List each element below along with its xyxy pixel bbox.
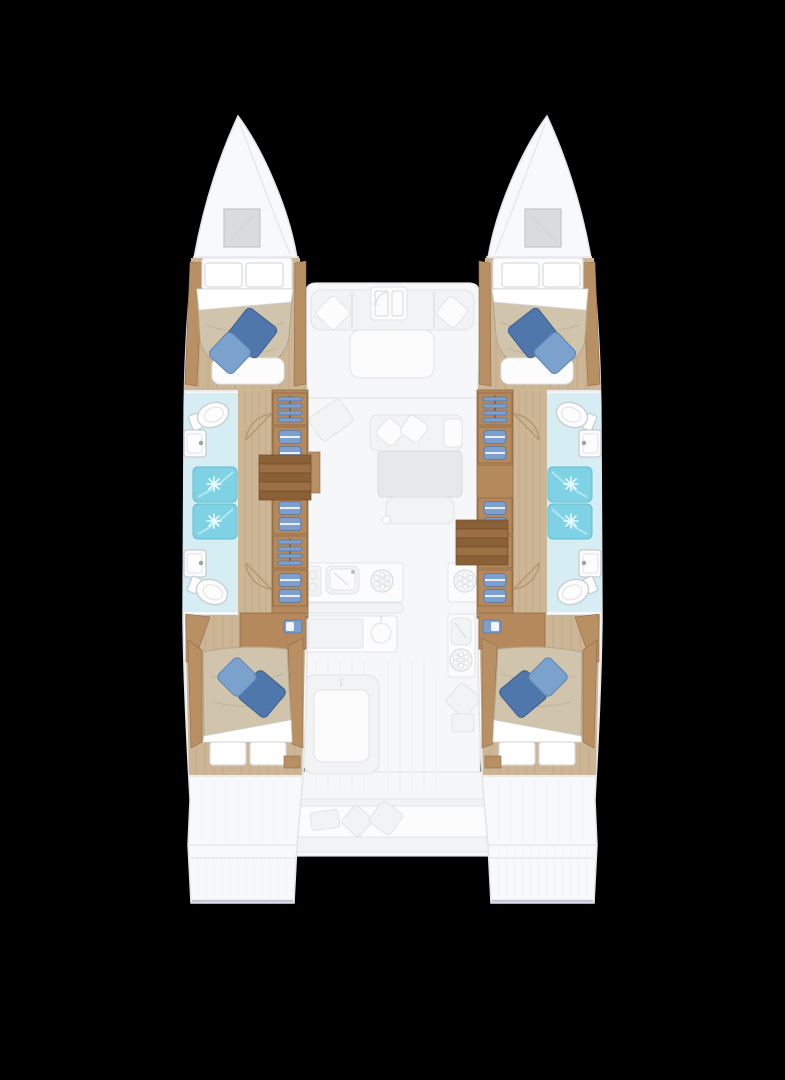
catamaran-floorplan [0,0,785,1080]
foredeck-door [371,287,407,320]
saloon-bench [386,497,454,524]
aft-galley-module [448,614,475,677]
starboard-stairs [456,520,508,565]
saloon-post [382,516,390,524]
aft-bench [267,799,512,852]
sofa-armrest [444,419,462,447]
aft-table-top [314,690,369,762]
cockpit-seat-cushion [452,714,474,732]
port-stairs [259,455,311,500]
port-hull [183,116,308,903]
galley-shelf [302,603,403,613]
starboard-hull [477,116,602,903]
saloon-table [378,451,462,497]
bench-pillow [310,809,340,831]
screenshot-root: { "canvas": { "width": 785, "height": 10… [0,0,785,1080]
forward-cockpit-table [350,330,434,378]
galley-island [303,616,397,652]
